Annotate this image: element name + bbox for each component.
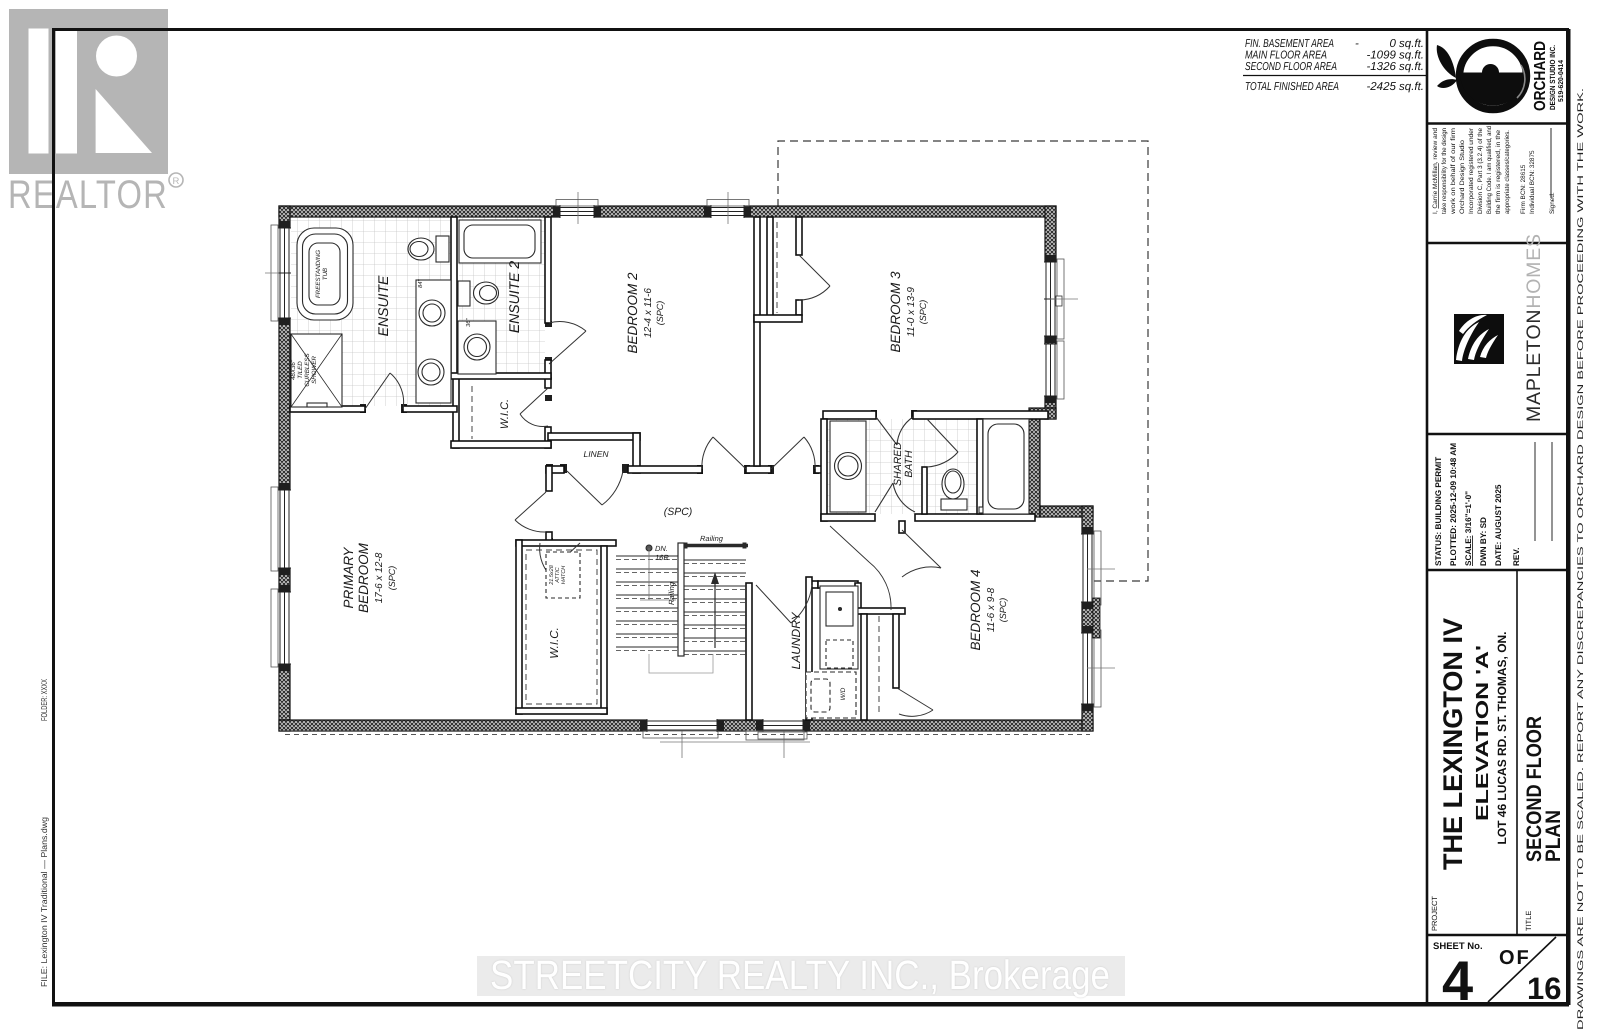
svg-text:PLAN: PLAN [1542, 810, 1565, 862]
svg-text:-: - [1355, 38, 1359, 50]
svg-text:R: R [173, 176, 180, 187]
svg-text:16: 16 [1527, 971, 1561, 1006]
svg-text:(SPC): (SPC) [655, 301, 665, 326]
svg-text:TOTAL FINISHED AREA: TOTAL FINISHED AREA [1245, 81, 1339, 93]
svg-text:MAPLETONHOMES: MAPLETONHOMES [1523, 233, 1545, 422]
svg-text:PLOTTED: 2025-12-09 10:48 A: PLOTTED: 2025-12-09 10:48 AM [1449, 443, 1458, 566]
svg-text:(SPC): (SPC) [387, 566, 397, 591]
svg-text:DRAWINGS ARE NOT TO BE SC: DRAWINGS ARE NOT TO BE SCALED. REPORT AN… [1576, 88, 1585, 1030]
svg-text:Firm BCN: 28615: Firm BCN: 28615 [1520, 164, 1527, 214]
svg-text:11-6 x 9-8: 11-6 x 9-8 [986, 587, 997, 632]
svg-text:W.I.C.: W.I.C. [549, 627, 561, 659]
svg-text:CURBLESS: CURBLESS [304, 352, 311, 386]
svg-text:Orchard Design Studio: Orchard Design Studio [1459, 139, 1466, 214]
svg-text:0 sq.ft.: 0 sq.ft. [1389, 38, 1424, 50]
svg-text:THE LEXINGTON IV: THE LEXINGTON IV [1438, 618, 1468, 870]
svg-text:W.I.C.: W.I.C. [499, 399, 511, 429]
svg-text:4: 4 [1442, 949, 1473, 1012]
svg-text:Railing: Railing [667, 581, 676, 605]
svg-text:PROJECT: PROJECT [1430, 896, 1439, 931]
svg-text:DESIGN STUDIO INC.: DESIGN STUDIO INC. [1548, 45, 1557, 110]
svg-text:LOT 46 LUCAS RD. ST. THOMAS, O: LOT 46 LUCAS RD. ST. THOMAS, ON. [1495, 632, 1509, 845]
svg-text:SHOWER: SHOWER [311, 356, 318, 384]
svg-text:(SPC): (SPC) [918, 300, 928, 325]
svg-text:ORCHARD: ORCHARD [1532, 41, 1549, 111]
svg-text:TUB: TUB [322, 268, 329, 280]
svg-text:12-4 x 11-6: 12-4 x 11-6 [643, 288, 654, 338]
svg-text:the firm is registered, in: the firm is registered, in the [1495, 130, 1502, 214]
svg-text:REV.: REV. [1512, 548, 1521, 566]
svg-text:519-620-0414: 519-620-0414 [1558, 60, 1565, 102]
svg-text:Division C, Part 3 (3.2.4): Division C, Part 3 (3.2.4) of the [1477, 128, 1484, 214]
svg-text:48X36": 48X36" [290, 359, 297, 380]
svg-text:SECOND FLOOR AREA: SECOND FLOOR AREA [1245, 61, 1337, 73]
svg-text:STREETCITY REALTY INC., Broker: STREETCITY REALTY INC., Brokerage [490, 952, 1110, 998]
svg-text:FREESTANDING: FREESTANDING [315, 250, 322, 298]
svg-text:84": 84" [417, 279, 424, 288]
svg-text:HATCH: HATCH [561, 566, 567, 585]
svg-text:SCALE: 3/16"=1'-0": SCALE: 3/16"=1'-0" [1464, 491, 1473, 566]
svg-text:ENSUITE: ENSUITE [375, 275, 391, 336]
svg-text:Incorporated registered unde: Incorporated registered under [1468, 127, 1475, 214]
svg-text:-1326 sq.ft.: -1326 sq.ft. [1366, 61, 1424, 73]
svg-text:W/D: W/D [840, 687, 847, 700]
svg-text:BEDROOM 3: BEDROOM 3 [888, 271, 903, 353]
svg-text:-2425 sq.ft.: -2425 sq.ft. [1366, 81, 1424, 93]
svg-text:(SPC): (SPC) [998, 598, 1008, 623]
svg-text:I, Carrie McMillan, review a: I, Carrie McMillan, review and [1432, 128, 1439, 214]
svg-text:17-6 x 12-8: 17-6 x 12-8 [374, 552, 385, 603]
svg-text:DATE: AUGUST 2025: DATE: AUGUST 2025 [1494, 484, 1503, 566]
svg-text:BEDROOM 2: BEDROOM 2 [625, 272, 640, 354]
svg-text:BEDROOM: BEDROOM [356, 542, 371, 613]
svg-text:DN.: DN. [655, 544, 668, 553]
svg-text:FILE: Lexington IV Tradition: FILE: Lexington IV Traditional — Plans.d… [39, 817, 49, 987]
svg-text:LINEN: LINEN [583, 449, 609, 459]
svg-text:FIN. BASEMENT AREA: FIN. BASEMENT AREA [1245, 38, 1334, 50]
svg-text:11-0 x 13-9: 11-0 x 13-9 [906, 287, 917, 337]
svg-text:PRIMARY: PRIMARY [341, 547, 356, 609]
svg-text:OF: OF [1499, 947, 1531, 969]
svg-text:MAIN FLOOR AREA: MAIN FLOOR AREA [1245, 50, 1327, 62]
svg-text:16R.: 16R. [655, 553, 671, 562]
svg-text:Individual BCN: 32875: Individual BCN: 32875 [1529, 150, 1536, 214]
svg-text:ENSUITE 2: ENSUITE 2 [506, 261, 522, 334]
svg-text:36": 36" [465, 318, 472, 327]
svg-text:TITLE: TITLE [1524, 911, 1533, 931]
svg-text:TILED: TILED [297, 361, 304, 379]
svg-text:appropriate classes/categorie: appropriate classes/categories. [1504, 130, 1511, 214]
svg-text:FOLDER: XXXX: FOLDER: XXXX [39, 679, 49, 721]
svg-text:ELEVATION 'A': ELEVATION 'A' [1472, 645, 1492, 821]
svg-text:Signed:: Signed: [1549, 192, 1556, 214]
svg-text:Building Code. I am qualified,: Building Code. I am qualified, and [1486, 126, 1493, 214]
svg-text:work on behalf of our fir: work on behalf of our firm [1450, 128, 1457, 215]
svg-text:LAUNDRY: LAUNDRY [789, 612, 803, 670]
svg-text:REALTOR: REALTOR [8, 173, 168, 217]
svg-text:Railing: Railing [700, 534, 724, 543]
svg-text:take responsibility for the de: take responsibility for the design [1441, 128, 1448, 214]
svg-text:(SPC): (SPC) [664, 506, 693, 518]
svg-text:DWN BY: SD: DWN BY: SD [1479, 517, 1488, 566]
svg-text:BEDROOM 4: BEDROOM 4 [968, 569, 983, 650]
svg-text:BATH: BATH [903, 450, 915, 478]
svg-text:STATUS: BUILDING PERMIT: STATUS: BUILDING PERMIT [1434, 457, 1443, 566]
svg-text:-1099 sq.ft.: -1099 sq.ft. [1366, 50, 1424, 62]
